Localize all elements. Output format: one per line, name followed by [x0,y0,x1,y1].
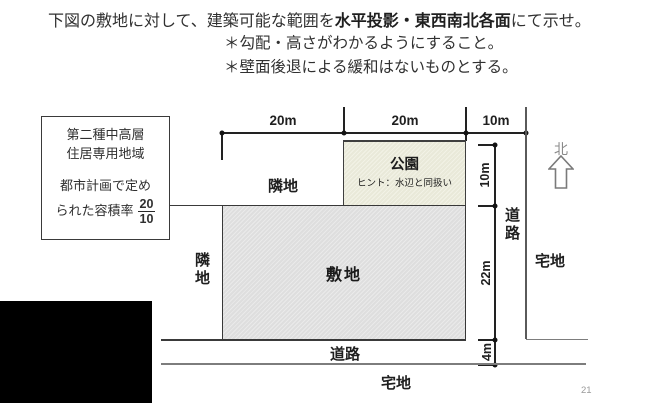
dimension-dot [464,131,469,136]
dim-top-center: 20m [344,113,466,128]
park-label: 公園 [390,158,419,174]
slide: 下図の敷地に対して、建築可能な範囲を水平投影・東西南北各面にて示せ。 ＊勾配・高… [0,0,653,403]
site-area: 敷地 [222,205,466,340]
ratio-numerator: 20 [138,197,156,212]
dim-park-depth: 10m [478,162,492,187]
dimension-dot [493,204,498,209]
dim-top-right: 10m [466,113,526,128]
problem-statement-post: にて示せ。 [511,13,591,30]
adjacent-land-label-top: 隣地 [222,175,344,196]
park-hint: ヒント：水辺と同扱い [357,175,452,189]
dim-top-left: 20m [222,113,344,128]
road-label-right: 道路 [504,207,519,243]
residential-label-right: 宅地 [527,250,573,271]
problem-statement-emphasis: 水平投影・東西南北各面 [335,13,511,30]
site-label: 敷地 [326,261,362,285]
north-arrow-icon [548,155,574,189]
zone-box-spacer [42,164,169,177]
note-slope-height: ＊勾配・高さがわかるようにすること。 [224,31,503,53]
zoning-info-box: 第二種中高層 住居専用地域 都市計画で定め られた容積率 20 10 [41,116,170,240]
dimension-dot [220,131,225,136]
residential-label-bottom: 宅地 [351,372,441,393]
page-number: 21 [581,385,592,396]
redaction-block [0,301,152,403]
road-label-bottom: 道路 [300,343,390,364]
floor-area-ratio-fraction: 20 10 [138,197,156,227]
problem-statement: 下図の敷地に対して、建築可能な範囲を水平投影・東西南北各面にて示せ。 [48,7,591,31]
dimension-dot [493,338,498,343]
ratio-denominator: 10 [138,212,156,226]
adjacent-land-label-left: 隣地 [194,252,209,288]
problem-statement-pre: 下図の敷地に対して、建築可能な範囲を [48,13,335,30]
zoning-district-line1: 第二種中高層 [42,126,169,145]
dimension-dot [342,131,347,136]
note-wall-setback: ＊壁面後退による緩和はないものとする。 [224,55,518,77]
dimension-dot [493,143,498,148]
dim-road-width: 4m [480,343,494,361]
top-dimension-line [222,132,526,133]
dim-site-depth: 22m [479,260,493,285]
extension-line-left [221,133,222,160]
park-area: 公園 ヒント：水辺と同扱い [343,140,466,206]
residential-right-boundary-line [526,339,588,340]
floor-area-ratio-line1: 都市計画で定め [42,177,169,196]
right-dimension-line [494,145,495,365]
floor-area-ratio-line2: られた容積率 [56,202,134,221]
zoning-district-line2: 住居専用地域 [42,145,169,164]
road-right-edge-line [525,107,526,339]
